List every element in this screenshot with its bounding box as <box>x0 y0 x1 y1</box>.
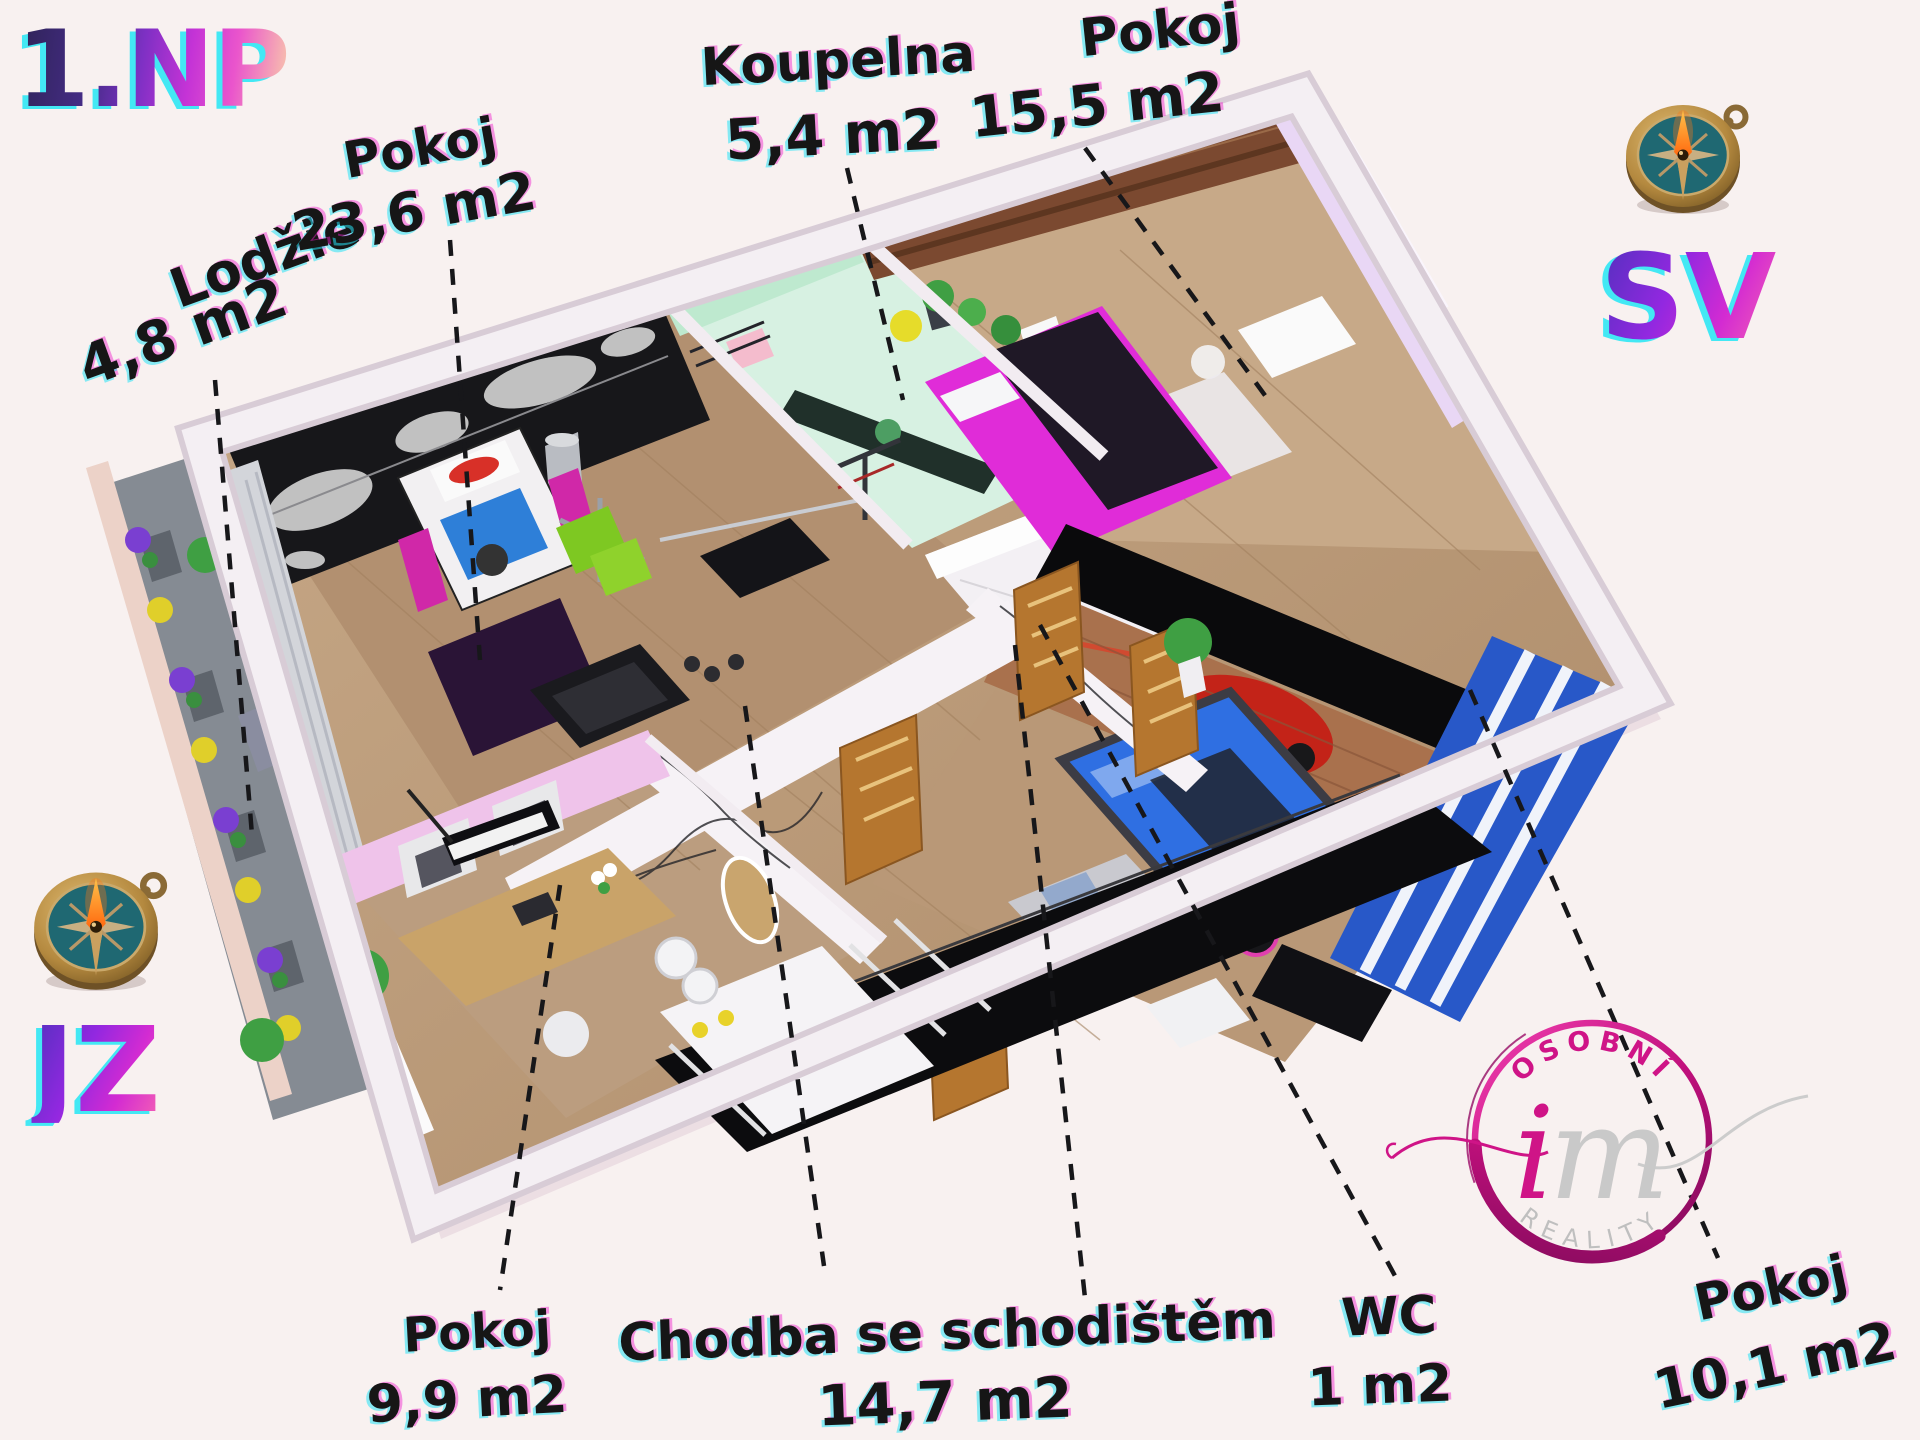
compass-icon <box>1613 92 1753 222</box>
room-label-chodba-area: 14,7 m2 <box>817 1371 1074 1436</box>
room-label-pinkroom-area: 9,9 m2 <box>365 1369 568 1431</box>
direction-ne-label: SV <box>1600 244 1776 350</box>
room-label-koupelna-name: Koupelna <box>700 28 977 94</box>
room-label-pinkroom-name: Pokoj <box>402 1304 553 1360</box>
desk-chair <box>543 1011 589 1057</box>
laundry-basket <box>890 310 922 342</box>
agency-logo: OSOBNÍ REALITY im <box>1380 960 1820 1330</box>
room-label-koupelna-area: 5,4 m2 <box>724 102 943 169</box>
compass-icon <box>20 858 172 1000</box>
hall-plant <box>1164 618 1212 666</box>
room-label-wc-area: 1 m2 <box>1307 1357 1453 1414</box>
floor-plan-page: 1.NP SV JZ <box>0 0 1920 1440</box>
logo-arc-top-text: OSOBNÍ <box>1505 1025 1680 1088</box>
water-tank-top <box>545 433 579 447</box>
logo-monogram: im <box>1514 1080 1670 1229</box>
balcony-plant-bottom <box>240 1018 284 1062</box>
floor-title: 1.NP <box>16 22 288 117</box>
direction-sw-label: JZ <box>31 1017 160 1123</box>
